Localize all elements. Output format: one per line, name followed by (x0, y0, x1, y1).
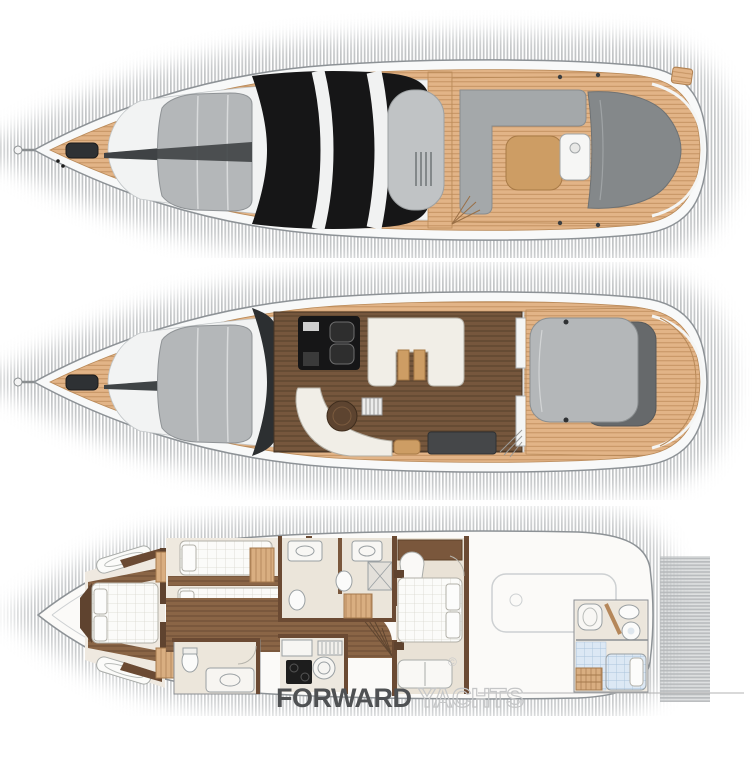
bathroom-wall (278, 618, 396, 622)
wardrobe (250, 548, 274, 582)
bathroom-wall (256, 640, 260, 694)
toilet (289, 590, 305, 610)
salon-bench (394, 440, 420, 454)
twin-bed-pillow (182, 545, 196, 571)
master-wall (464, 536, 469, 694)
nightstand (394, 570, 404, 578)
copyright-mark: © (448, 655, 457, 669)
galley-counter (282, 640, 312, 656)
sunpad-seam (227, 327, 228, 442)
galley-hob (303, 352, 319, 366)
anchor-windlass (66, 143, 98, 158)
watermark-yachts: YACHTS (418, 683, 524, 713)
anchor-windlass (66, 375, 98, 390)
canopy-white-stripe (374, 72, 382, 228)
galley-wall (278, 634, 348, 638)
stern-shadow-stripes (660, 556, 710, 702)
deck-fitting (56, 159, 60, 163)
bathroom-cabinet (344, 594, 372, 618)
yacht-deck-plans-image: © FORWARD YACHTS (0, 0, 752, 772)
cleat (564, 418, 569, 423)
bow-roller (14, 146, 22, 154)
bathroom-wall (278, 536, 282, 622)
crew-pillow (630, 658, 643, 686)
cockpit-door-post (516, 318, 526, 368)
crew-sink-drain (628, 628, 635, 635)
washing-machine (313, 657, 335, 679)
vanity-counter (206, 668, 254, 692)
sunpad-seam (197, 328, 198, 441)
bow-roller (14, 378, 22, 386)
hardtop-opening (388, 90, 444, 210)
master-pillow (446, 584, 460, 610)
galley-sink (303, 322, 319, 331)
vip-pillow (94, 589, 107, 614)
crew-toilet (619, 605, 639, 619)
toilet (336, 571, 352, 591)
yacht-deck-plans-page: © FORWARD YACHTS (0, 0, 752, 772)
nightstand (394, 642, 404, 650)
wardrobe (156, 648, 174, 678)
cockpit-door-post (516, 396, 526, 446)
vanity-counter (288, 541, 322, 561)
wet-bar-sink (570, 143, 580, 153)
aft-deck-hatch (671, 67, 693, 86)
deck-fitting (61, 164, 65, 168)
vip-pillow (94, 616, 107, 641)
crew-drawers (576, 668, 602, 690)
stairs-to-flybridge (362, 398, 382, 415)
watermark-text: FORWARD YACHTS (276, 683, 524, 713)
vanity-counter (352, 541, 382, 561)
lower-deck-plan (38, 531, 710, 702)
galley-hob (286, 660, 312, 684)
helm-seat (330, 344, 354, 364)
aft-sunpad (530, 318, 638, 422)
sideboard (428, 432, 496, 454)
toilet-tank (183, 648, 197, 654)
master-pillow (446, 612, 460, 638)
coffee-table (327, 401, 357, 431)
flybridge-wet-bar (560, 134, 590, 180)
dinette-table (398, 350, 409, 380)
helm-seat (330, 322, 354, 342)
watermark-forward: FORWARD (276, 683, 412, 713)
cleat (564, 320, 569, 325)
bathroom-wall (172, 638, 260, 642)
dinette-table (414, 350, 425, 380)
flybridge-table (506, 136, 562, 190)
foredeck-sunpad (158, 325, 253, 443)
